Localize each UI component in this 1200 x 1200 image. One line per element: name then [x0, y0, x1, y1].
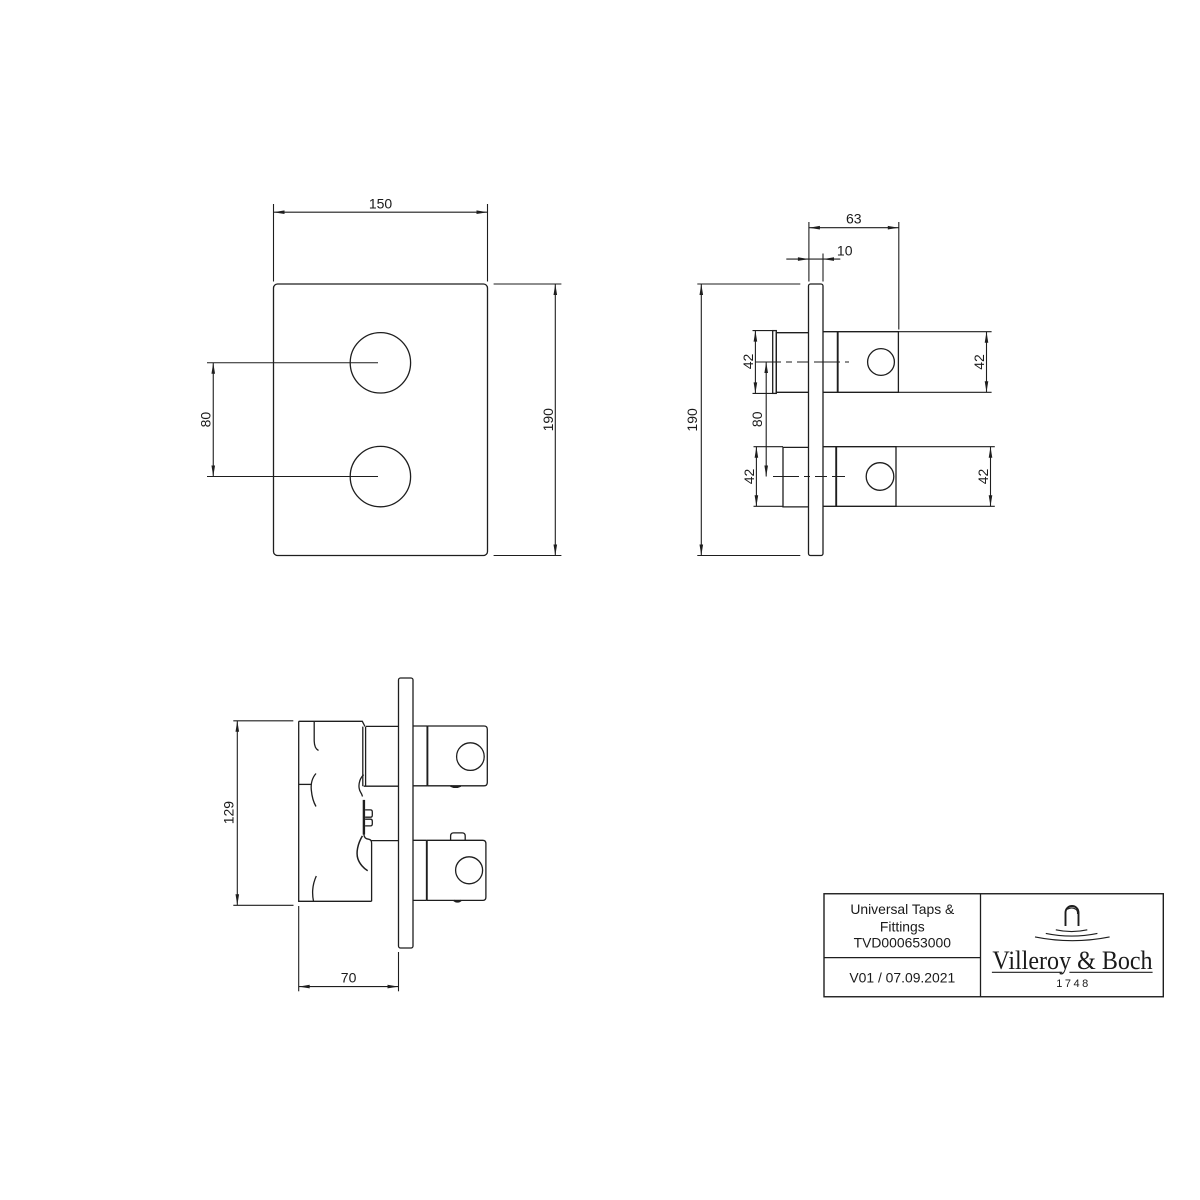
svg-text:TVD000653000: TVD000653000	[854, 934, 952, 950]
svg-text:63: 63	[846, 211, 862, 227]
svg-text:80: 80	[198, 412, 214, 428]
svg-text:42: 42	[740, 354, 756, 370]
svg-text:70: 70	[341, 970, 357, 986]
svg-text:190: 190	[540, 408, 556, 432]
svg-text:10: 10	[837, 243, 853, 259]
svg-text:42: 42	[975, 469, 991, 485]
svg-text:1748: 1748	[1056, 978, 1090, 990]
svg-text:V01 / 07.09.2021: V01 / 07.09.2021	[849, 970, 955, 986]
svg-text:Universal Taps &: Universal Taps &	[850, 901, 955, 917]
svg-text:Fittings: Fittings	[880, 919, 925, 935]
svg-text:80: 80	[749, 411, 765, 427]
svg-text:Villeroy & Boch: Villeroy & Boch	[992, 946, 1152, 975]
svg-text:150: 150	[369, 196, 393, 212]
svg-text:42: 42	[971, 354, 987, 370]
svg-text:129: 129	[221, 801, 237, 825]
svg-text:190: 190	[684, 408, 700, 432]
svg-text:42: 42	[741, 469, 757, 485]
